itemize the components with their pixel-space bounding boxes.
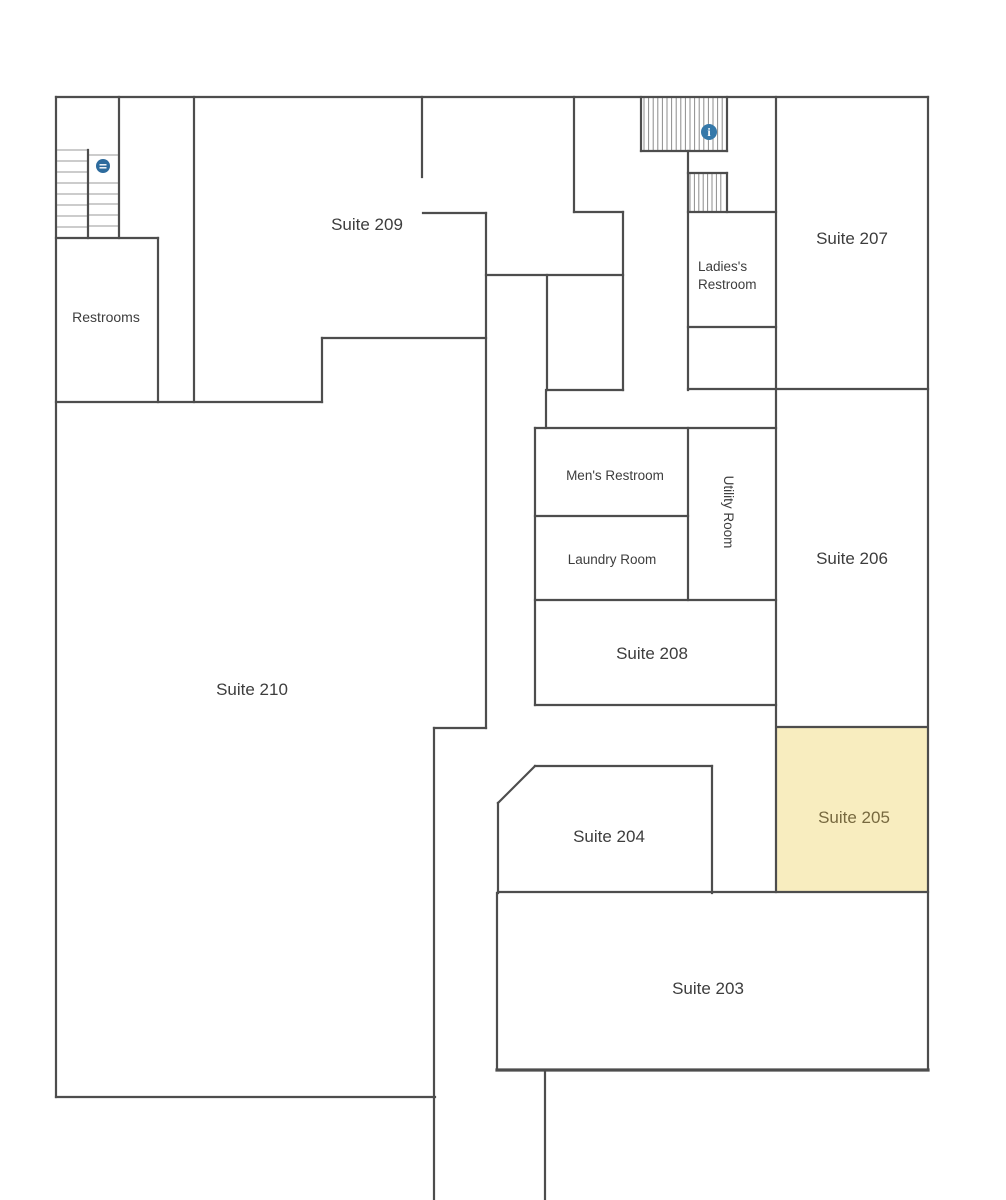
- stairs-marker-icon-circle: [96, 159, 110, 173]
- stairs-marker-icon: [96, 159, 110, 173]
- room-label-suite-210: Suite 210: [216, 680, 288, 699]
- floor-plan-canvas: Suite 209Suite 207Suite 206Suite 205Suit…: [0, 0, 1006, 1200]
- floor-plan-page: Suite 209Suite 207Suite 206Suite 205Suit…: [0, 0, 1006, 1200]
- room-label-suite-203: Suite 203: [672, 979, 744, 998]
- room-label-suite-207: Suite 207: [816, 229, 888, 248]
- room-label-utility-room: Utility Room: [721, 476, 736, 549]
- room-label-suite-209: Suite 209: [331, 215, 403, 234]
- room-label-mens-restroom: Men's Restroom: [566, 468, 664, 483]
- info-icon: i: [701, 124, 717, 140]
- room-label-laundry-room: Laundry Room: [568, 552, 657, 567]
- room-label-suite-206: Suite 206: [816, 549, 888, 568]
- plan-background: [0, 0, 1006, 1200]
- room-label-line: Restroom: [698, 277, 757, 292]
- room-label-line: Ladies's: [698, 259, 747, 274]
- room-label-suite-204: Suite 204: [573, 827, 645, 846]
- room-label-suite-208: Suite 208: [616, 644, 688, 663]
- room-label-suite-205: Suite 205: [818, 808, 890, 827]
- room-label-restrooms: Restrooms: [72, 309, 140, 325]
